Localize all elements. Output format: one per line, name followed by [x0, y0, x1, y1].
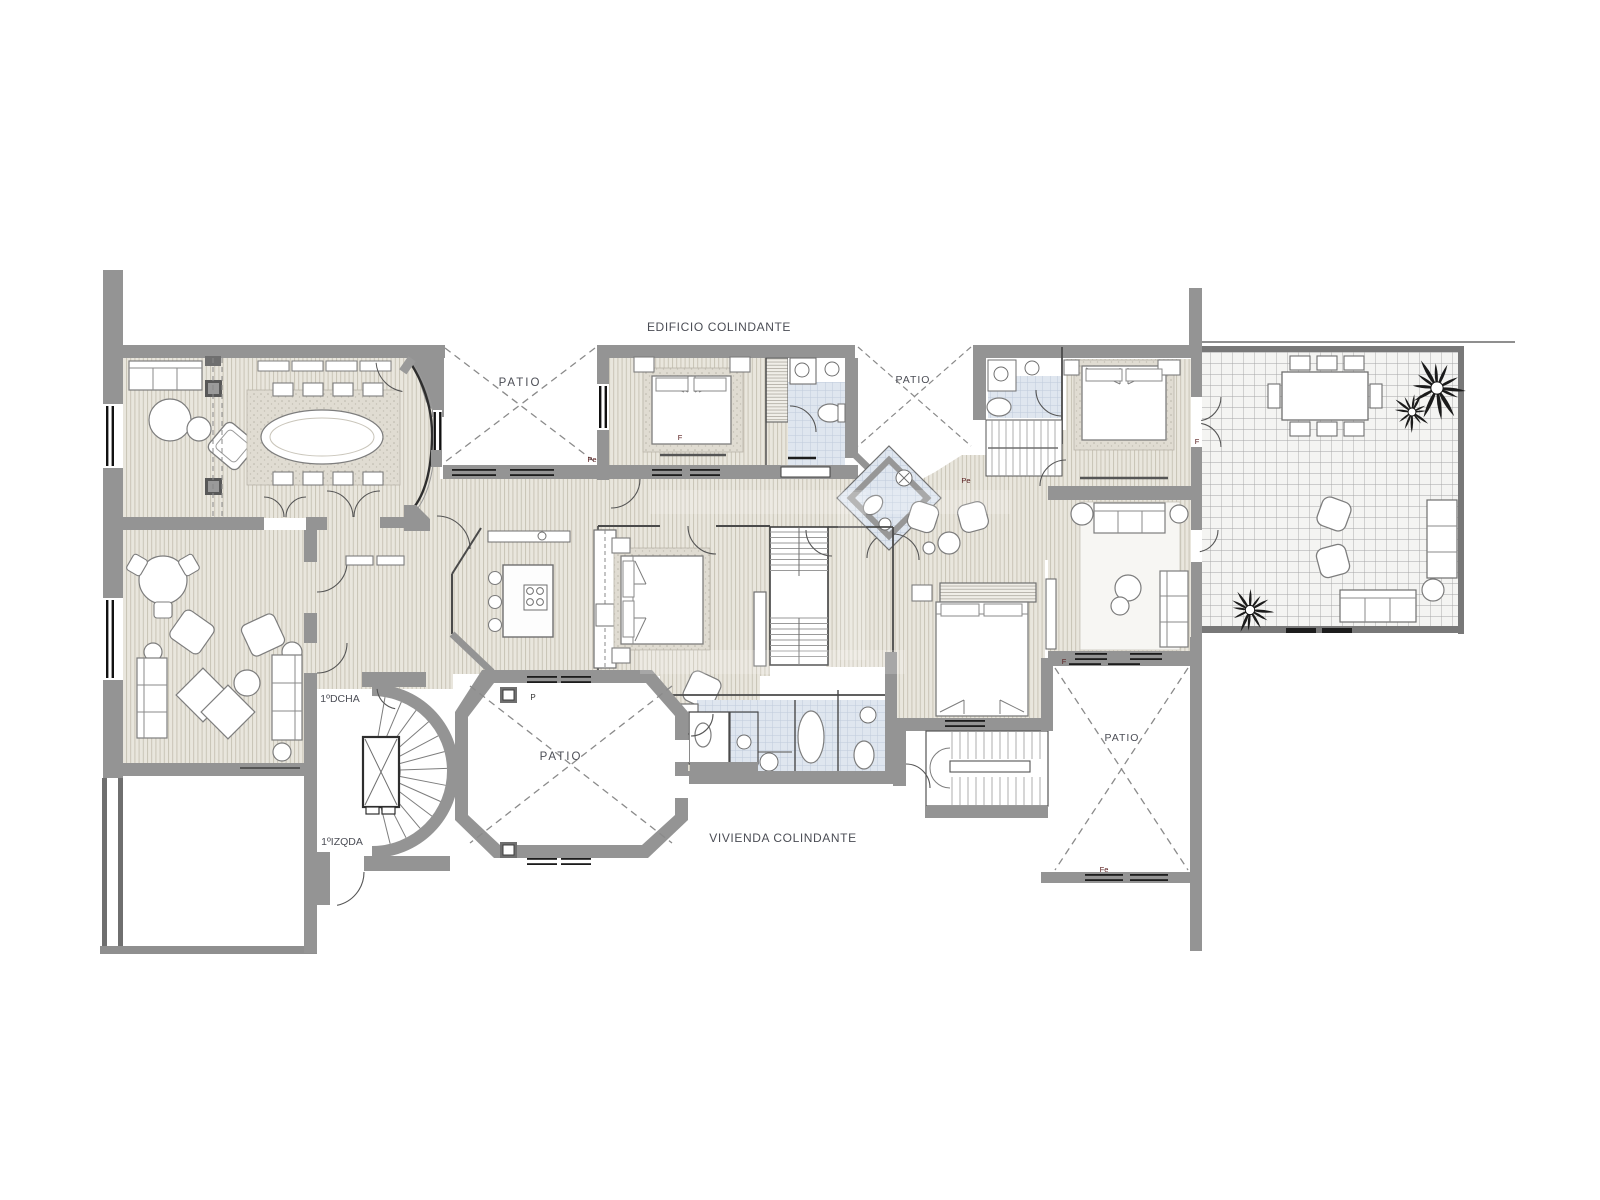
- svg-text:F: F: [678, 433, 683, 442]
- svg-text:Pe: Pe: [587, 455, 596, 464]
- svg-text:EDIFICIO COLINDANTE: EDIFICIO COLINDANTE: [647, 320, 791, 334]
- svg-text:Pe: Pe: [961, 476, 970, 485]
- svg-text:VIVIENDA COLINDANTE: VIVIENDA COLINDANTE: [709, 831, 856, 845]
- svg-text:PATIO: PATIO: [896, 374, 931, 386]
- svg-text:PATIO: PATIO: [1105, 732, 1140, 744]
- svg-text:PATIO: PATIO: [499, 377, 542, 389]
- svg-text:Fe: Fe: [1100, 865, 1109, 874]
- svg-text:F: F: [1195, 437, 1200, 446]
- svg-text:F: F: [1062, 657, 1067, 666]
- svg-text:1ºDCHA: 1ºDCHA: [320, 693, 359, 705]
- svg-text:PATIO: PATIO: [540, 751, 583, 763]
- svg-text:P: P: [530, 693, 535, 702]
- svg-text:1ºIZQDA: 1ºIZQDA: [321, 836, 363, 848]
